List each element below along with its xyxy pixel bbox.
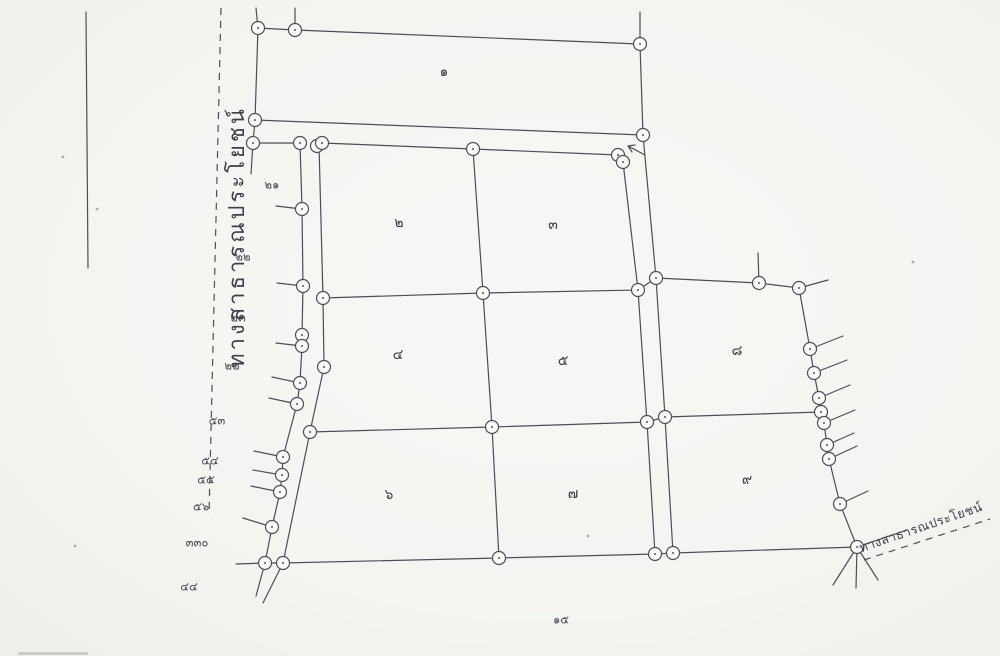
parcel-number-label: ๗ bbox=[568, 486, 579, 502]
survey-marker-center-dot bbox=[323, 366, 325, 368]
survey-marker-center-dot bbox=[296, 403, 298, 405]
survey-marker-center-dot bbox=[309, 431, 311, 433]
survey-marker-center-dot bbox=[302, 285, 304, 287]
survey-marker-center-dot bbox=[281, 474, 283, 476]
survey-marker-center-dot bbox=[498, 557, 500, 559]
survey-marker-center-dot bbox=[491, 426, 493, 428]
survey-marker-center-dot bbox=[282, 456, 284, 458]
scan-speck bbox=[74, 545, 77, 548]
scan-smudge bbox=[18, 652, 88, 655]
survey-map: ๑๒๓๔๕๘๖๗๙๒๑๒๒๒๓๒๒๕๓๕๔๕๕๕๖๓๓๐๔๔๑๕ทางสาธาร… bbox=[0, 0, 1000, 656]
survey-marker-center-dot bbox=[639, 43, 641, 45]
boundary-marker-label: ๕๓ bbox=[209, 414, 226, 428]
survey-marker-center-dot bbox=[655, 277, 657, 279]
road-label-west: ทางสาธารณประโยชน์ bbox=[224, 106, 250, 368]
survey-marker-center-dot bbox=[758, 282, 760, 284]
survey-marker-center-dot bbox=[828, 458, 830, 460]
survey-marker-center-dot bbox=[839, 503, 841, 505]
survey-marker-center-dot bbox=[257, 27, 259, 29]
parcel-number-label: ๕ bbox=[558, 353, 569, 369]
boundary-line-page-edge-line bbox=[86, 12, 88, 268]
survey-marker-center-dot bbox=[299, 142, 301, 144]
survey-marker-center-dot bbox=[820, 411, 822, 413]
parcel-number-label: ๖ bbox=[385, 487, 394, 503]
boundary-line-arrow-mark bbox=[628, 145, 645, 155]
boundary-marker-label: ๕๖ bbox=[193, 500, 209, 514]
boundary-lines-layer bbox=[86, 8, 990, 603]
boundary-line-inner-west-edge bbox=[263, 145, 324, 603]
survey-marker-center-dot bbox=[264, 562, 266, 564]
survey-marker-center-dot bbox=[672, 552, 674, 554]
survey-marker-center-dot bbox=[646, 421, 648, 423]
boundary-line-row-divider-north bbox=[323, 278, 799, 298]
survey-marker-center-dot bbox=[617, 154, 619, 156]
boundary-marker-label: ๕๕ bbox=[197, 473, 215, 487]
survey-marker-center-dot bbox=[301, 345, 303, 347]
parcel-number-label: ๘ bbox=[732, 343, 743, 359]
boundary-line-parcel-1-outline bbox=[255, 28, 643, 135]
boundary-line-strip-east-line bbox=[643, 135, 673, 553]
survey-marker-center-dot bbox=[798, 287, 800, 289]
survey-marker-center-dot bbox=[637, 289, 639, 291]
survey-marker-circles-layer bbox=[62, 22, 915, 570]
survey-marker-center-dot bbox=[622, 161, 624, 163]
boundary-marker-label: ๓๓๐ bbox=[186, 536, 209, 550]
survey-marker-center-dot bbox=[813, 372, 815, 374]
survey-marker-center-dot bbox=[299, 382, 301, 384]
survey-marker-center-dot bbox=[642, 134, 644, 136]
survey-marker-center-dot bbox=[254, 119, 256, 121]
survey-marker-center-dot bbox=[809, 348, 811, 350]
parcel-number-label: ๒ bbox=[394, 215, 403, 231]
survey-marker-center-dot bbox=[654, 553, 656, 555]
survey-marker-center-dot bbox=[301, 334, 303, 336]
parcel-number-label: ๑ bbox=[440, 64, 449, 80]
parcel-number-label: ๓ bbox=[548, 217, 558, 233]
parcel-number-label: ๔ bbox=[393, 347, 404, 363]
south-distance-label: ๑๕ bbox=[553, 613, 569, 627]
survey-marker-center-dot bbox=[322, 297, 324, 299]
scan-speck bbox=[587, 535, 590, 538]
boundary-marker-label: ๒๑ bbox=[265, 178, 280, 192]
boundary-marker-label: ๔๔ bbox=[180, 580, 198, 594]
survey-marker-center-dot bbox=[321, 142, 323, 144]
survey-marker-center-dot bbox=[856, 546, 858, 548]
survey-marker-center-dot bbox=[252, 142, 254, 144]
boundary-line-row-divider-south bbox=[310, 412, 821, 432]
scan-speck bbox=[62, 156, 65, 159]
survey-marker-center-dot bbox=[482, 292, 484, 294]
scan-speck bbox=[912, 261, 915, 264]
survey-marker-center-dot bbox=[271, 526, 273, 528]
survey-marker-center-dot bbox=[818, 397, 820, 399]
survey-marker-center-dot bbox=[294, 29, 296, 31]
survey-marker-center-dot bbox=[301, 208, 303, 210]
parcel-number-label: ๙ bbox=[742, 472, 752, 488]
survey-marker-center-dot bbox=[472, 148, 474, 150]
survey-marker-center-dot bbox=[279, 491, 281, 493]
scan-speck bbox=[96, 208, 99, 211]
survey-marker-center-dot bbox=[826, 444, 828, 446]
boundary-line-south-boundary bbox=[265, 547, 857, 563]
boundary-line-central-divider bbox=[473, 149, 499, 558]
dashed-road-line-west-road-dashed bbox=[209, 8, 221, 515]
survey-marker-center-dot bbox=[664, 416, 666, 418]
survey-marker-center-dot bbox=[282, 562, 284, 564]
survey-marker-center-dot bbox=[823, 422, 825, 424]
scanned-survey-document: ๑๒๓๔๕๘๖๗๙๒๑๒๒๒๓๒๒๕๓๕๔๕๕๕๖๓๓๐๔๔๑๕ทางสาธาร… bbox=[0, 0, 1000, 656]
boundary-marker-label: ๕๔ bbox=[201, 454, 219, 468]
